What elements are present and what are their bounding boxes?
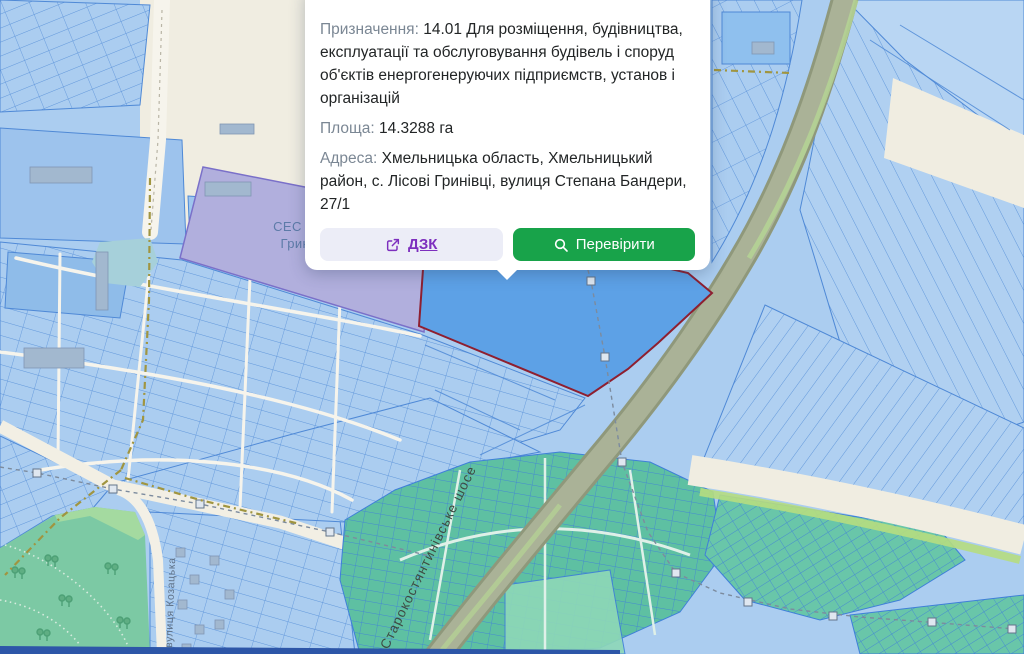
popup-actions: ДЗК Перевірити [320,228,695,261]
check-button-label: Перевірити [576,236,655,253]
cadastral-map-viewport[interactable]: СЕС «Лісові Гринівці» Старокостянтинівсь… [0,0,1024,654]
search-icon [553,237,569,253]
address-row: Адреса: Хмельницька область, Хмельницьки… [320,147,695,216]
area-label: Площа: [320,120,375,137]
dzk-link-button[interactable]: ДЗК [320,228,503,261]
area-row: Площа: 14.3288 га [320,117,695,140]
dzk-button-label: ДЗК [408,236,437,253]
designation-label: Призначення: [320,21,419,38]
address-label: Адреса: [320,150,377,167]
designation-row: Призначення: 14.01 Для розміщення, будів… [320,18,695,110]
check-button[interactable]: Перевірити [513,228,696,261]
parcel-info-popup: Призначення: 14.01 Для розміщення, будів… [305,0,710,270]
external-link-icon [385,237,401,253]
area-value: 14.3288 га [379,120,453,137]
